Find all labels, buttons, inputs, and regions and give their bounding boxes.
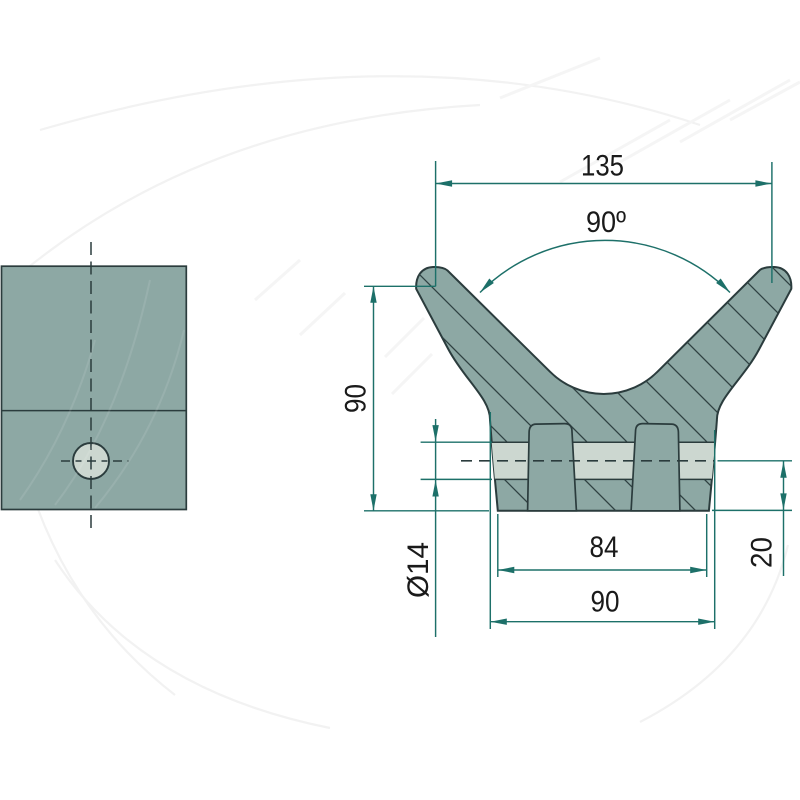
svg-text:135: 135 bbox=[581, 150, 624, 183]
svg-text:Ø14: Ø14 bbox=[402, 542, 435, 598]
svg-text:90: 90 bbox=[591, 586, 620, 619]
svg-text:90: 90 bbox=[340, 384, 373, 413]
svg-text:20: 20 bbox=[746, 537, 779, 568]
svg-text:84: 84 bbox=[590, 531, 619, 564]
svg-text:90º: 90º bbox=[586, 206, 626, 239]
